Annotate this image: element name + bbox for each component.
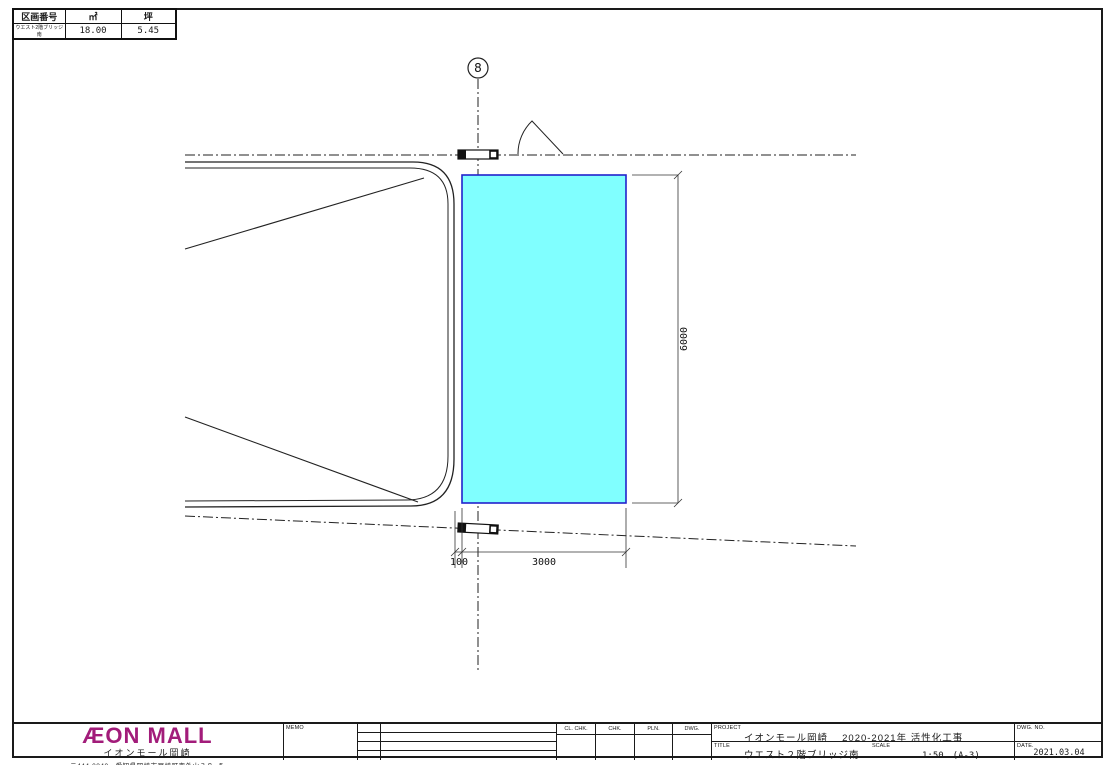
company-name: イオンモール岡崎 [12, 746, 283, 759]
sign-cell-chk: CHK. [595, 724, 634, 760]
sign-label-chk: CHK. [596, 724, 634, 735]
dimension-width: 100 3000 [450, 508, 630, 568]
svg-text:3000: 3000 [532, 557, 556, 568]
aeon-mall-logo: ÆON MALL [12, 726, 283, 746]
dwgno-date-cell: DWG. NO. DATE. 2021.03.04 [1014, 724, 1103, 760]
title-label: TITLE [714, 743, 730, 749]
section-sqm: 18.00 [65, 24, 121, 40]
scale-value: 1:50 (A-3) [922, 748, 980, 761]
memo-label: MEMO [286, 725, 304, 731]
revision-table [357, 724, 556, 760]
memo-cell: MEMO [283, 724, 357, 760]
sign-label-dwg: DWG. [673, 724, 711, 735]
header-square-meters: ㎡ [65, 9, 121, 24]
sign-label-pln: PLN. [635, 724, 672, 735]
area-schedule-data-row: ウエスト2階ブリッジ南 18.00 5.45 [13, 24, 176, 40]
ramp-diagonal-upper [185, 178, 424, 249]
revision-mark-column [358, 724, 381, 760]
date-row: DATE. 2021.03.04 [1015, 742, 1103, 760]
column-symbol-top [458, 150, 498, 159]
title-value: ウエスト２階ブリッジ南 [744, 747, 860, 761]
dwg-no-row: DWG. NO. [1015, 724, 1103, 742]
title-block: ÆON MALL イオンモール岡崎 〒444-0840 愛知県岡崎市戸崎町字外山… [12, 722, 1103, 758]
area-schedule-table: 区画番号 ㎡ 坪 ウエスト2階ブリッジ南 18.00 5.45 [12, 8, 177, 40]
plan-drawing-canvas: 8 6 [0, 0, 1114, 765]
svg-text:8: 8 [474, 61, 482, 75]
dwg-no-label: DWG. NO. [1017, 725, 1045, 731]
title-row: TITLE ウエスト２階ブリッジ南 SCALE 1:50 (A-3) [712, 742, 1014, 760]
building-outline [185, 162, 454, 507]
header-section-number: 区画番号 [13, 9, 65, 24]
revision-note-column [381, 724, 556, 760]
ramp-diagonal-lower [185, 417, 418, 502]
drawing-sheet: 8 6 [0, 0, 1114, 765]
sign-cell-pln: PLN. [634, 724, 672, 760]
section-tsubo: 5.45 [121, 24, 176, 40]
dimension-height: 6000 [632, 171, 690, 507]
sign-box-dwg [673, 735, 711, 760]
column-symbol-bottom [458, 523, 498, 534]
company-block: ÆON MALL イオンモール岡崎 〒444-0840 愛知県岡崎市戸崎町字外山… [12, 724, 283, 760]
sign-box-cl-chk [557, 735, 595, 760]
section-name: ウエスト2階ブリッジ南 [13, 24, 65, 40]
sign-box-pln [635, 735, 672, 760]
scale-label: SCALE [872, 743, 890, 749]
sign-cell-dwg: DWG. [672, 724, 711, 760]
project-row: PROJECT イオンモール岡崎 2020-2021年 活性化工事 [712, 724, 1014, 742]
header-tsubo: 坪 [121, 9, 176, 24]
svg-text:100: 100 [450, 557, 468, 568]
project-label: PROJECT [714, 725, 741, 731]
project-title-cell: PROJECT イオンモール岡崎 2020-2021年 活性化工事 TITLE … [711, 724, 1014, 760]
sign-cell-cl-chk: CL. CHK. [556, 724, 595, 760]
sign-label-cl-chk: CL. CHK. [557, 724, 595, 735]
bridge-area-highlight [462, 175, 626, 503]
sign-box-chk [596, 735, 634, 760]
centerline-diagonal-bottom [185, 516, 856, 546]
svg-text:6000: 6000 [679, 327, 690, 351]
grid-bubble-8: 8 [468, 58, 488, 78]
door-swing-symbol [518, 121, 563, 154]
date-value: 2021.03.04 [1015, 748, 1103, 758]
area-schedule-header-row: 区画番号 ㎡ 坪 [13, 9, 176, 24]
company-address: 〒444-0840 愛知県岡崎市戸崎町字外山３８−５ [12, 760, 283, 765]
